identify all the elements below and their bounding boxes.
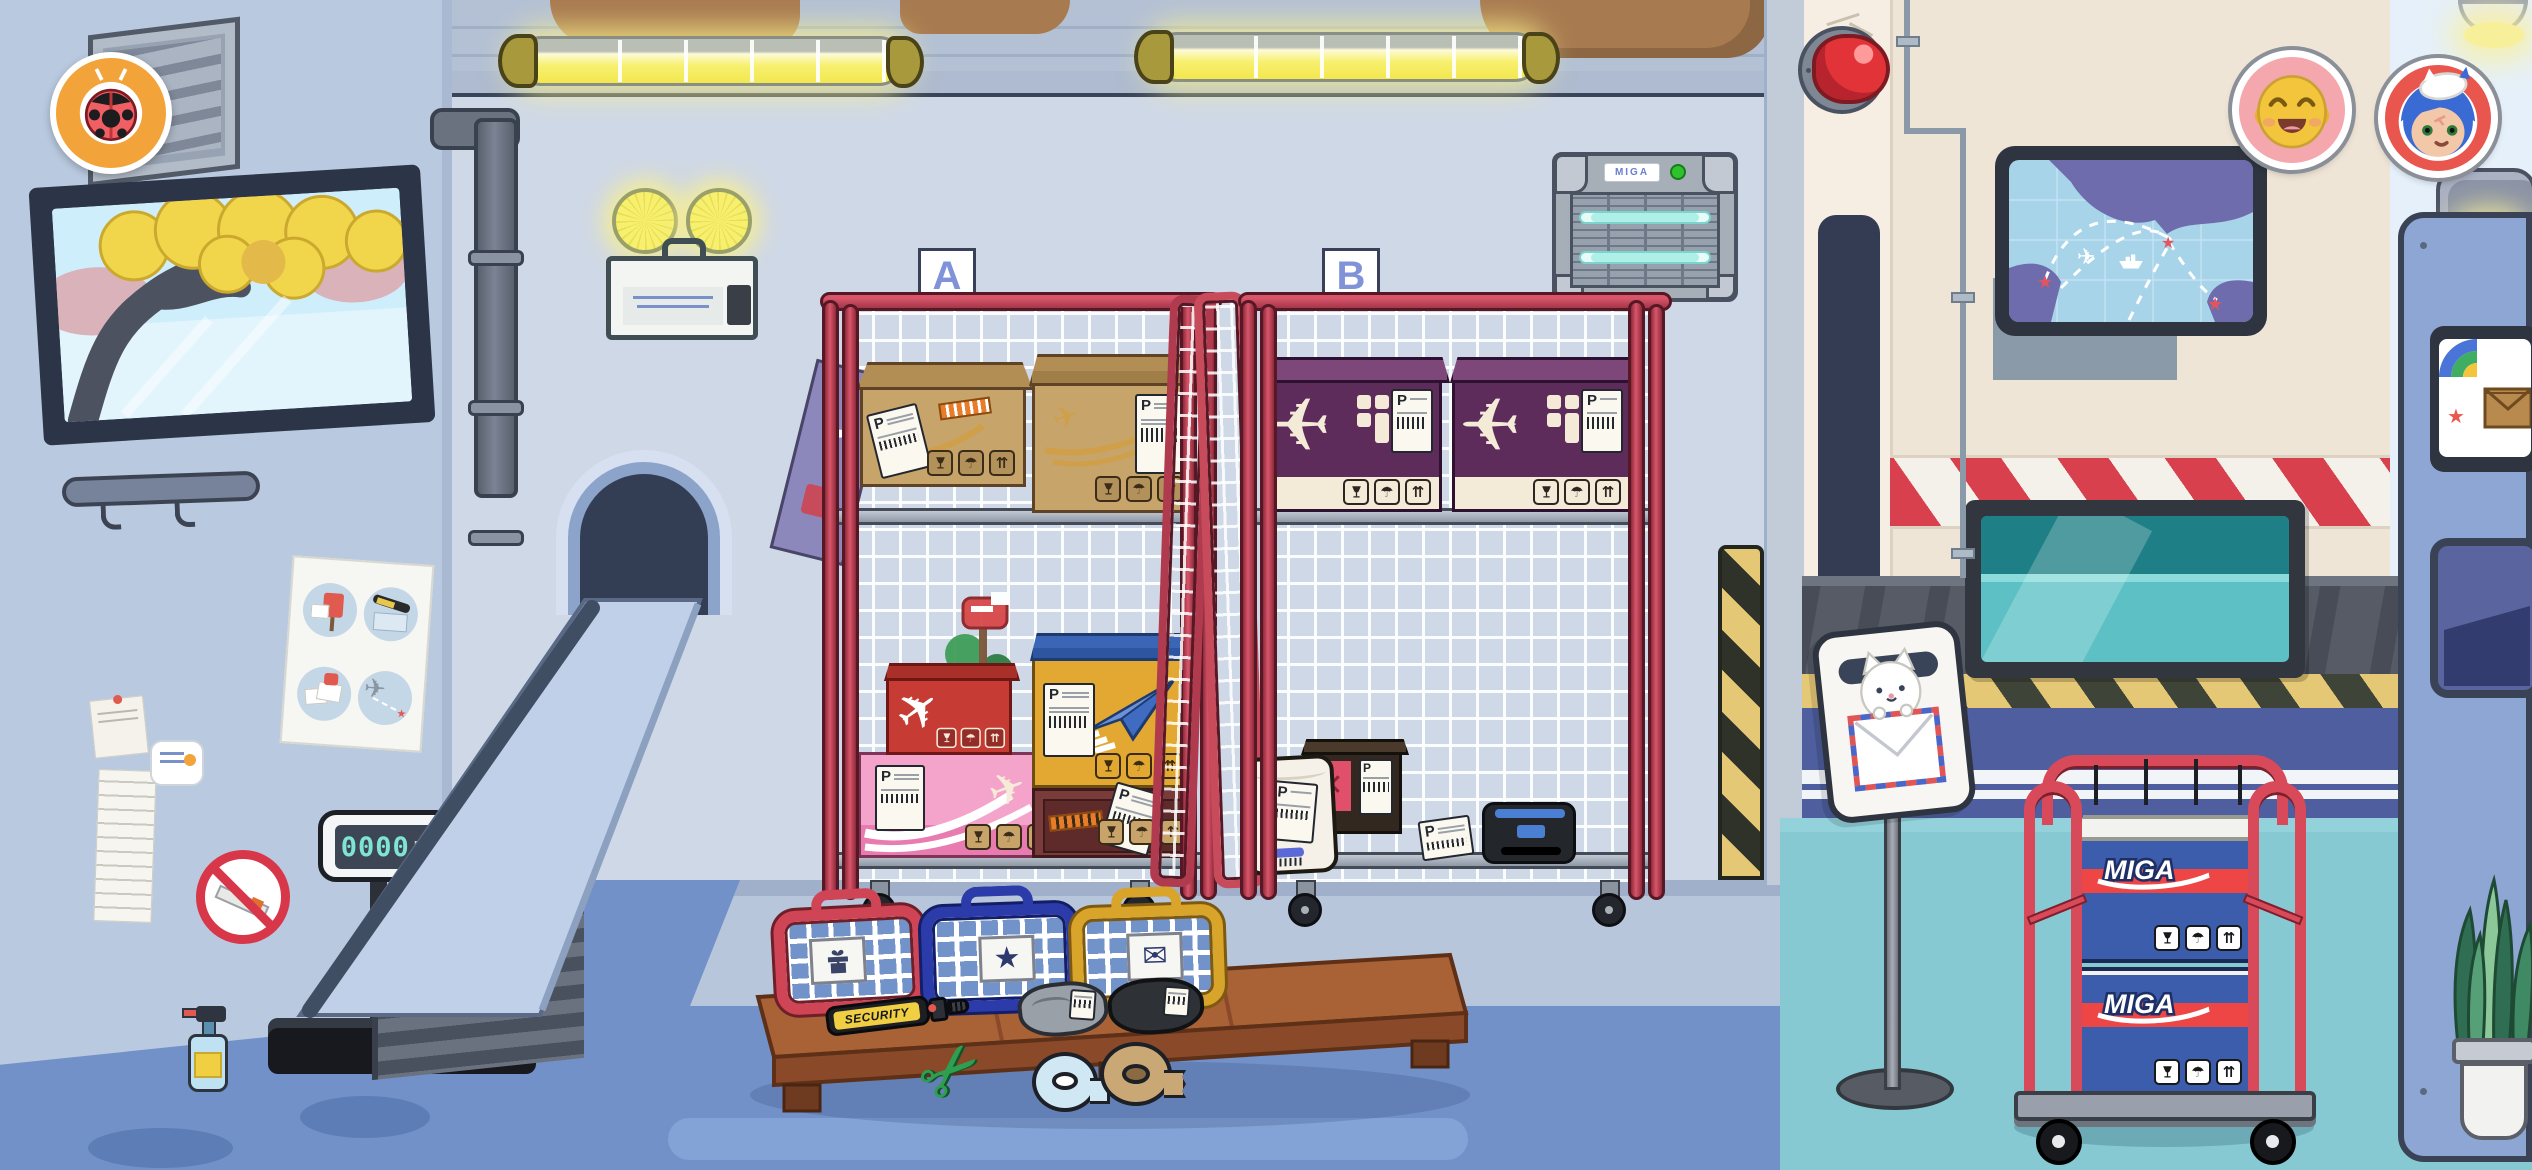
warehouse-corner-strip [1764,0,1804,885]
blue-tape-roll[interactable] [1032,1052,1110,1116]
purple-airline-box[interactable]: ✈ P ☂ ⇈ [1452,380,1632,512]
map-monitor: ★ ★ ★ ✈ [1995,146,2267,336]
avatar-button-blue-hair[interactable] [2378,58,2498,178]
shipping-label: P [875,765,925,831]
umbrella-icon: ☂ [996,824,1022,850]
umbrella-icon: ☂ [1126,476,1152,502]
miga-logo: MIGA [2090,849,2220,893]
tube-end-cap [886,36,924,88]
handling-icons: ☂ ⇈ [1343,479,1431,505]
fragile-icon [1098,819,1124,845]
svg-text:★: ★ [2207,294,2223,315]
tree-view [52,188,412,423]
handling-icons: ☂ ⇈ [2154,1059,2242,1085]
smiley-avatar-icon [2239,57,2345,163]
svg-text:★: ★ [2161,233,2175,252]
emergency-light-switch [727,285,751,325]
wall-paper-sheet [93,769,156,923]
carrier-tag: ✉ [1126,932,1184,982]
trolley-hoop [2024,781,2082,1091]
kiosk-screen: ★ [2430,326,2532,472]
label-printer[interactable] [1482,802,1576,864]
this-side-up-icon: ⇈ [1595,479,1621,505]
snake-plant-leaves [2440,870,2532,1060]
svg-text:✈: ✈ [2077,245,2095,270]
fragile-icon [1095,753,1121,779]
exit-ladybug-button[interactable] [50,52,172,174]
world-map-screen: ★ ★ ★ ✈ [2009,160,2253,322]
carrier-tag: ★ [978,935,1036,983]
shipping-label: P [1581,389,1623,453]
umbrella-icon: ☂ [2185,925,2211,951]
miga-logo: MIGA [2090,983,2220,1027]
fragile-icon [965,824,991,850]
svg-text:✈: ✈ [1048,397,1083,438]
handling-icons: ☂ ⇈ [1533,479,1621,505]
fragile-icon [927,450,953,476]
cat-in-envelope-icon [1817,625,1971,818]
brown-tape-roll[interactable] [1100,1042,1186,1112]
sign-pole [1884,780,1901,1090]
speech-bubble-sticker [150,740,204,786]
uv-lamp-indicator [1670,164,1686,180]
umbrella-icon: ☂ [961,728,981,748]
handling-icons: ☂ ⇈ [2154,925,2242,951]
svg-text:MIGA: MIGA [2104,989,2175,1019]
hazard-post [1718,545,1764,880]
spray-bottle[interactable] [178,1000,238,1096]
ladybug-icon [56,58,166,168]
miga-trolley[interactable]: MIGA ☂ ⇈ MIGA ☂ ⇈ [2008,755,2328,1155]
tube-end-cap [1134,30,1174,84]
game-scene: ✈ ★ 0000 kg [0,0,2532,1170]
cage-frame-bar [1260,304,1277,900]
fragile-icon [2154,925,2180,951]
caster-wheel [1286,880,1326,928]
fluorescent-light [498,34,922,90]
wall-pipe [428,100,558,500]
shipping-label: P [1043,683,1095,757]
umbrella-icon: ☂ [958,450,984,476]
bag-label [1069,989,1097,1021]
umbrella-icon: ☂ [1564,479,1590,505]
this-side-up-icon: ⇈ [2216,925,2242,951]
scanner-window [1965,500,2305,678]
red-airline-box[interactable]: ✈ ☂ ⇈ [886,678,1012,755]
this-side-up-icon: ⇈ [2216,1059,2242,1085]
floor-stain [300,1096,430,1138]
purple-airline-box[interactable]: ✈ P ☂ ⇈ [1262,380,1442,512]
cardboard-box-small[interactable]: ✈ P ☂ ⇈ [860,387,1026,487]
conveyor-ramp [230,560,750,1040]
sign-board [1810,619,1977,825]
umbrella-icon: ☂ [1126,753,1152,779]
roll-cage-b[interactable]: B ✈ P ☂ ⇈ [1230,240,1680,940]
shipping-label: P [1359,759,1393,815]
tube-end-cap [498,34,538,88]
water-damage-stain [900,0,1070,34]
tube-end-cap [1522,32,1560,84]
handling-icons: ☂ ⇈ [936,728,1005,748]
caster-wheel [1590,880,1630,928]
cage-frame-bar [1240,300,1257,900]
fragile-icon [1343,479,1369,505]
svg-text:★: ★ [2447,404,2465,428]
pinned-note [89,695,149,758]
avatar-button-smiley[interactable] [2232,50,2352,170]
trolley-base [2014,1091,2316,1121]
kiosk-parcel-slot [2430,538,2532,698]
this-side-up-icon: ⇈ [1405,479,1431,505]
this-side-up-icon: ⇈ [985,728,1005,748]
miga-box[interactable]: MIGA ☂ ⇈ [2078,837,2254,963]
cage-a-label: A [933,256,962,296]
fluorescent-light [1134,30,1558,86]
airplane-icon: ✈ [1269,389,1331,463]
cage-frame-bar [1648,304,1665,900]
potted-plant[interactable] [2440,870,2532,1160]
fragile-icon [1533,479,1559,505]
envelope-icon: ✉ [1142,941,1168,972]
floor-stain [88,1128,233,1168]
alarm-light [1798,26,1898,122]
svg-text:★: ★ [2037,272,2053,293]
cage-b-label: B [1337,256,1366,296]
cage-top-bar [820,292,1222,311]
shipping-label: P [1391,389,1433,453]
bag-label [1163,986,1191,1018]
fragile-icon [1095,476,1121,502]
star-icon: ★ [993,943,1021,974]
airplane-icon: ✈ [1459,389,1521,463]
carrier-tag [809,936,867,985]
umbrella-icon: ☂ [1374,479,1400,505]
plant-pot [2460,1062,2528,1140]
fragile-icon [2154,1059,2180,1085]
umbrella-icon: ☂ [2185,1059,2211,1085]
trolley-hoop [2248,781,2306,1091]
handling-icons: ☂ ⇈ [927,450,1015,476]
svg-text:MIGA: MIGA [2104,855,2175,885]
loose-shipping-label-card[interactable]: P [1417,815,1474,862]
tree-window [28,164,435,445]
uv-lamp-brand-label: MIGA [1604,163,1660,182]
gift-icon [822,945,854,977]
blue-hair-avatar-icon [2385,65,2491,171]
cage-frame-bar [842,304,859,900]
this-side-up-icon: ⇈ [989,450,1015,476]
emergency-light [596,186,772,344]
cage-top-bar [1238,292,1672,311]
fragile-icon [936,728,956,748]
cage-frame-bar [822,300,839,900]
miga-box[interactable]: MIGA ☂ ⇈ [2078,967,2254,1099]
cage-frame-bar [1628,300,1645,900]
kiosk-screen-content: ★ [2439,339,2531,457]
pet-mail-sign [1812,620,1982,1120]
ceiling-lamp [2452,0,2532,60]
plant-pot [2452,1038,2532,1064]
dark-doorway [1818,215,1880,583]
